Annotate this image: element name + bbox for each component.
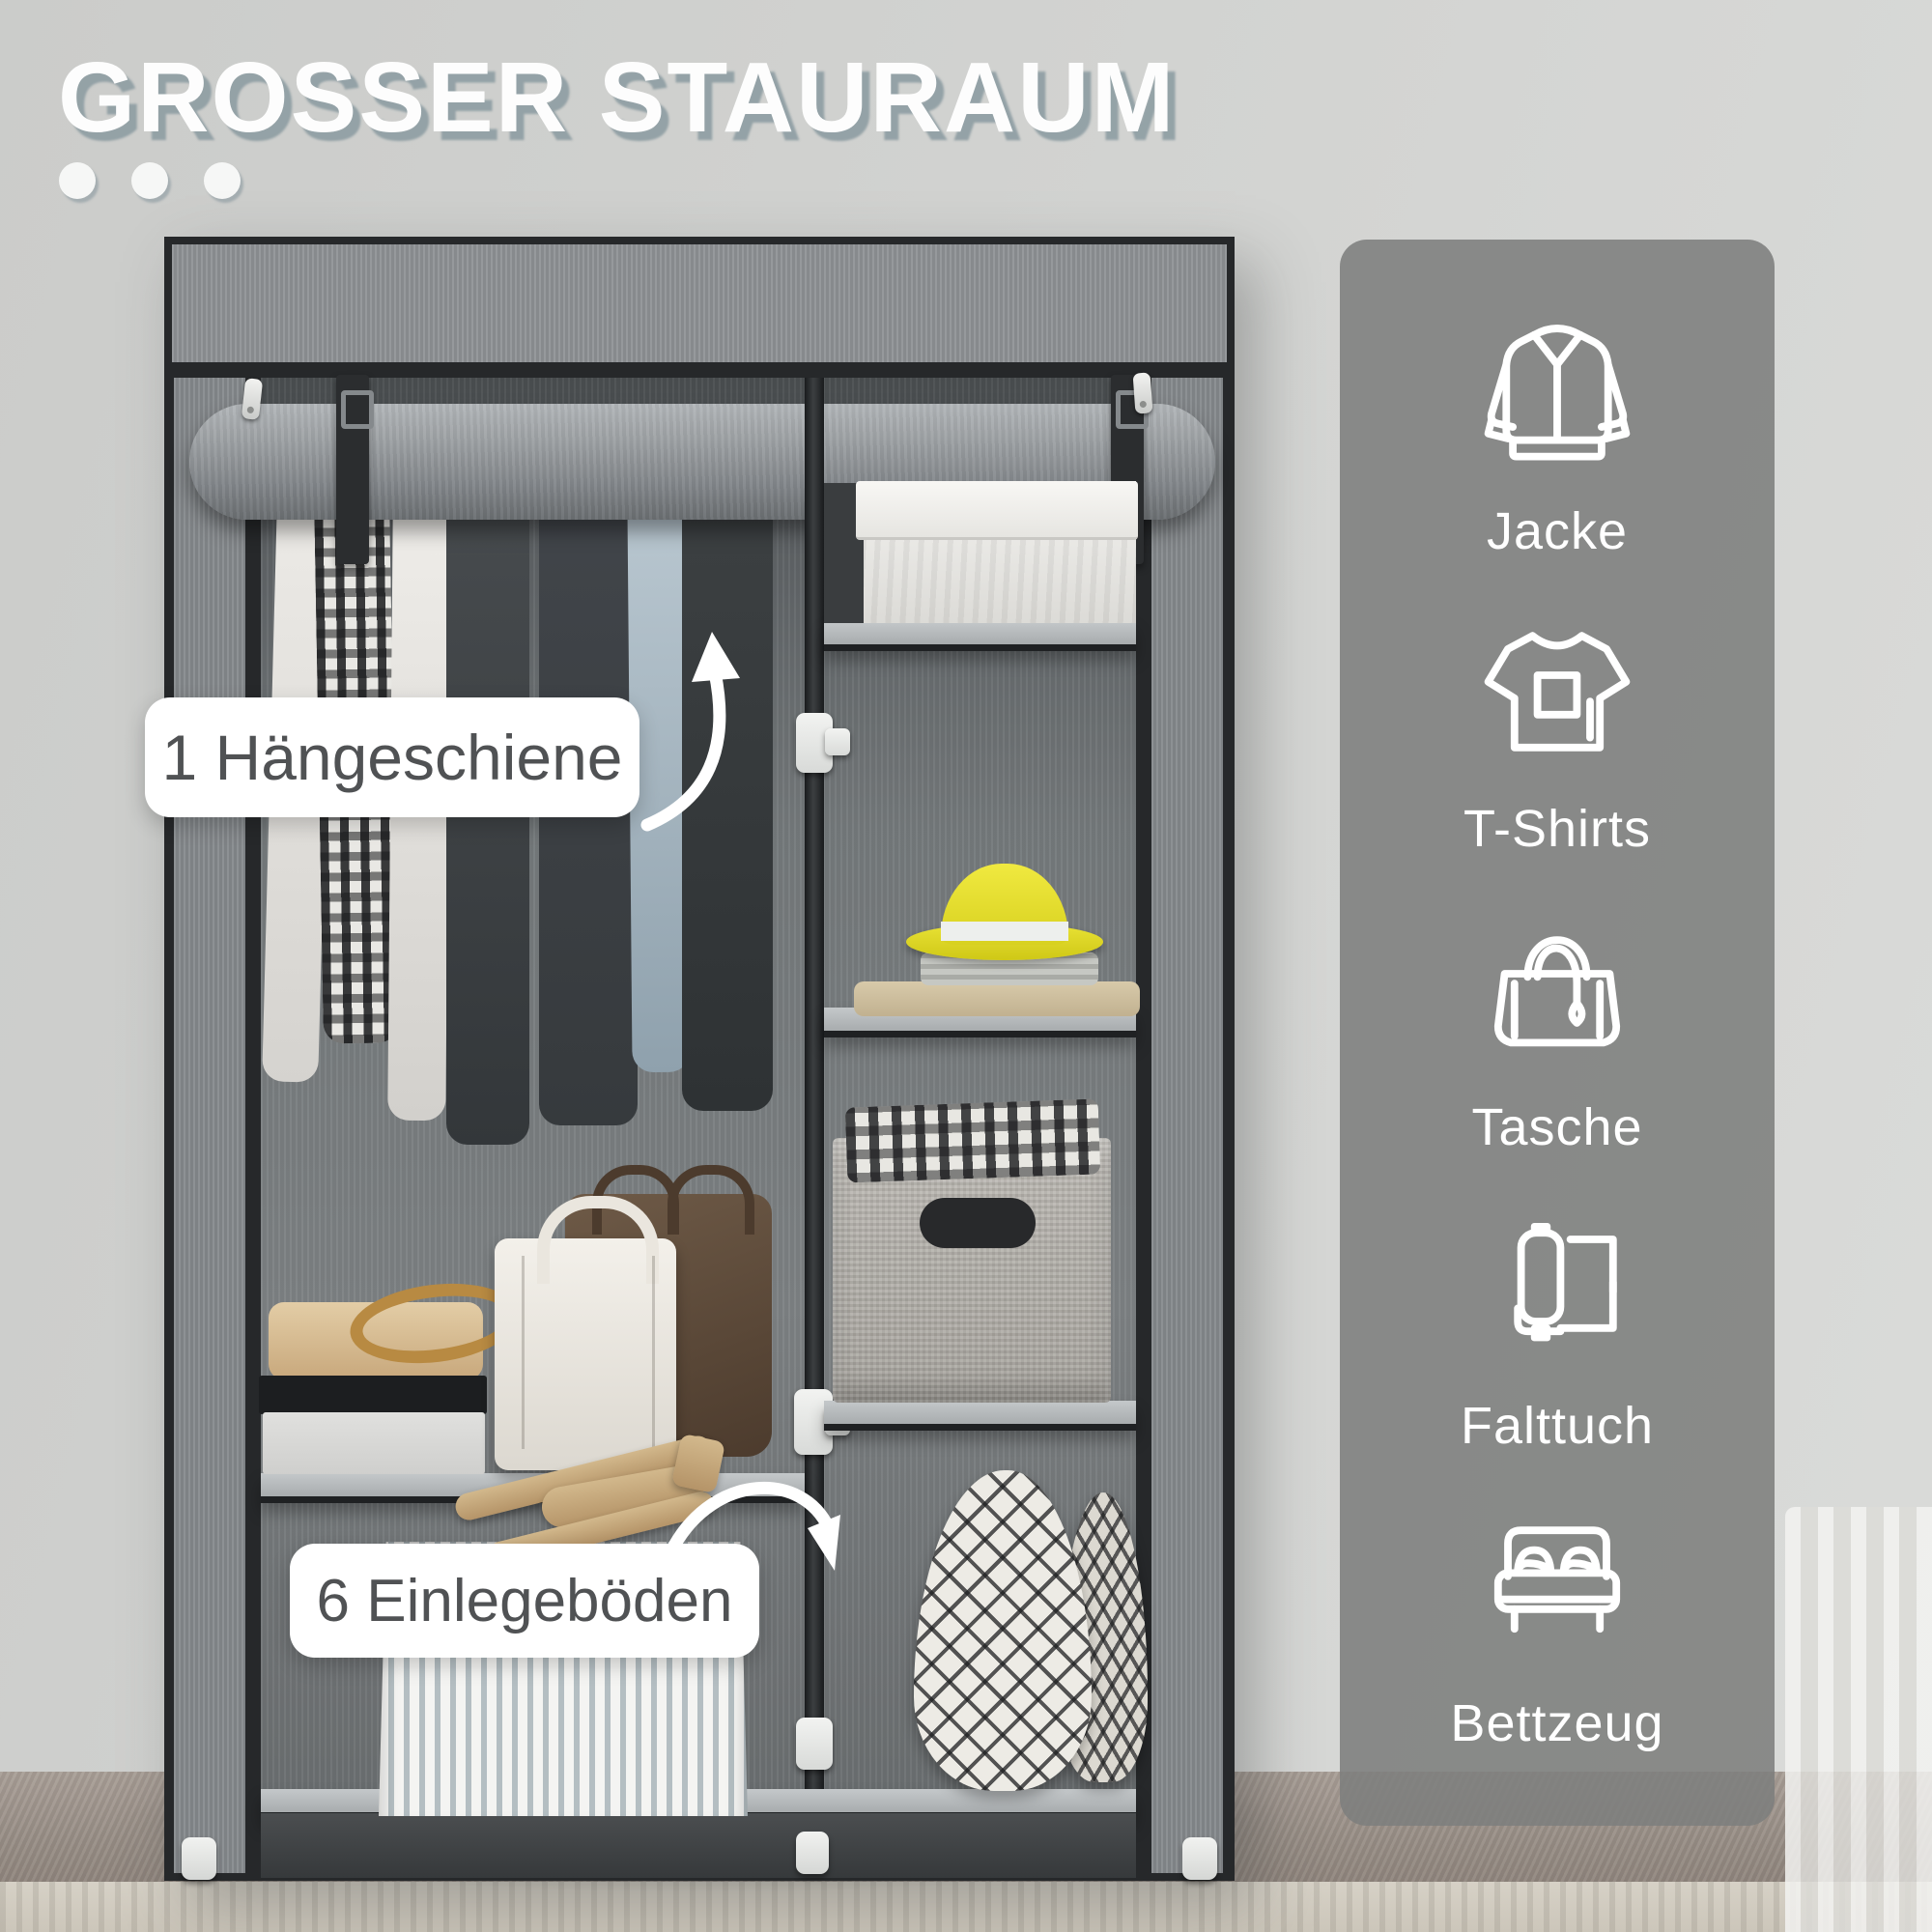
white-storage-box-lid [856,481,1138,540]
black-book [259,1376,487,1414]
shelf-right-1 [824,621,1136,651]
white-handbag [495,1238,676,1470]
wardrobe-foot-right [1182,1837,1217,1880]
tshirt-icon [1475,610,1639,774]
garment-gray-suit [446,502,529,1145]
cover-strap-left [336,375,369,564]
callout-hanging-rail: 1 Hängeschiene [145,697,639,817]
center-pole [805,378,824,1878]
sidebar-item-tasche: Tasche [1471,908,1642,1157]
feature-sidebar: Jacke T-Shirts Tasche [1340,240,1775,1826]
sidebar-label-tasche: Tasche [1471,1097,1642,1157]
sidebar-item-jacke: Jacke [1475,312,1639,561]
floor-rug [0,1882,1932,1932]
sidebar-item-tshirts: T-Shirts [1463,610,1651,859]
product-infographic: GROSSER STAURAUM [0,0,1932,1932]
wardrobe-foot-left [182,1837,216,1880]
wardrobe-foot-center [796,1832,829,1874]
sidebar-item-falttuch: Falttuch [1461,1207,1654,1456]
sidebar-label-tshirts: T-Shirts [1463,799,1651,859]
zipper-pull-right-icon [1133,372,1153,413]
pole-connector-arm [825,728,850,755]
wardrobe-right-panel [1151,378,1223,1873]
shelf-right-3 [824,1401,1136,1431]
under-wardrobe-shadow [261,1813,1136,1878]
curved-arrow-down-icon [657,1457,869,1611]
bag-icon [1475,908,1639,1072]
gray-fabric-box-handle [920,1198,1036,1248]
page-title: GROSSER STAURAUM [58,41,1176,155]
folded-clothes-beige [854,981,1140,1016]
bed-icon [1475,1504,1639,1668]
sidebar-label-bettzeug: Bettzeug [1450,1693,1663,1753]
curved-arrow-up-icon [614,597,779,838]
sidebar-label-jacke: Jacke [1487,501,1628,561]
callout-hanging-rail-label: 1 Hängeschiene [161,721,622,794]
title-dots [59,162,241,199]
curtain [1785,1507,1932,1932]
white-box [263,1412,485,1474]
pole-connector [796,1718,833,1770]
yellow-hat-band [941,922,1068,941]
wardrobe-top-panel [172,244,1227,362]
sidebar-item-bettzeug: Bettzeug [1450,1504,1663,1753]
jacket-icon [1475,312,1639,476]
wardrobe-left-panel [174,378,245,1873]
folded-cloth-icon [1475,1207,1639,1371]
sidebar-label-falttuch: Falttuch [1461,1396,1654,1456]
checked-blanket [845,1098,1101,1182]
